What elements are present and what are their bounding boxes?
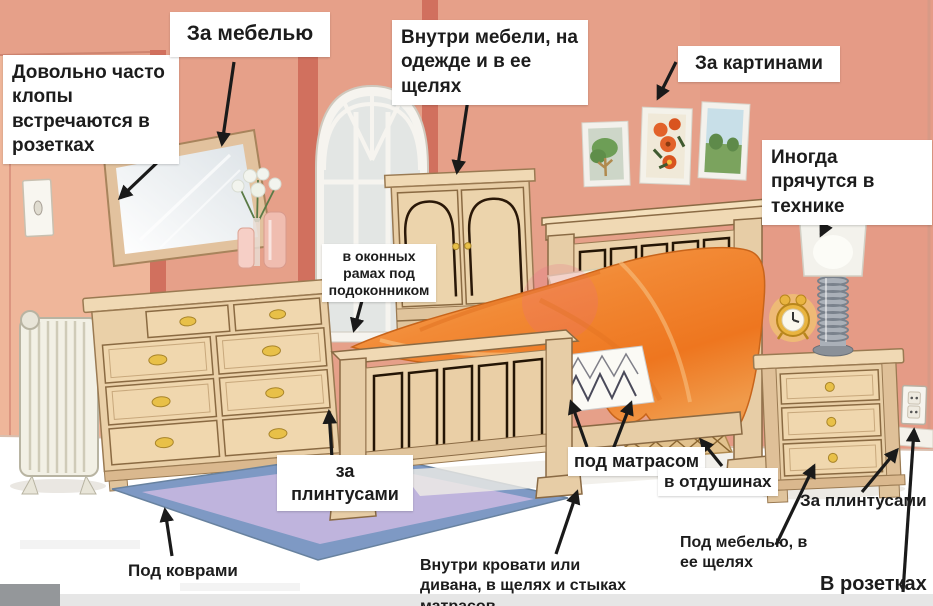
label-behind-baseboards-right: За плинтусами [800,490,927,512]
picture-frame-landscape [698,102,750,180]
alarm-clock [769,294,817,342]
label-in-electronics: Иногда прячутся в технике [762,140,932,225]
label-behind-furniture: За мебелью [170,12,330,57]
radiator [10,311,106,494]
label-behind-baseboards-left: за плинтусами [277,455,413,511]
label-inside-bed: Внутри кровати или дивана, в щелях и сты… [420,556,644,606]
wardrobe-knob [452,243,459,250]
label-outlets-often: Довольно часто клопы встречаются в розет… [3,55,179,164]
label-in-vents: в отдушинах [658,468,778,496]
wardrobe-knob [464,243,471,250]
label-inside-furniture: Внутри мебели, на одежде и в ее щелях [392,20,588,105]
bedbug-hiding-places-diagram: Довольно часто клопы встречаются в розет… [0,0,933,606]
label-under-furniture: Под мебелью, в ее щелях [680,533,828,574]
picture-frame-flowers [640,107,693,185]
label-window-frames: в оконных рамах под подоконником [322,244,436,302]
label-in-outlets: В розетках [820,572,927,598]
label-behind-pictures: За картинами [678,46,840,82]
power-outlet [901,386,926,425]
label-under-carpets: Под коврами [128,560,238,582]
bottom-left-corner [0,584,60,606]
light-switch [23,179,54,236]
picture-frame-tree [582,121,630,187]
